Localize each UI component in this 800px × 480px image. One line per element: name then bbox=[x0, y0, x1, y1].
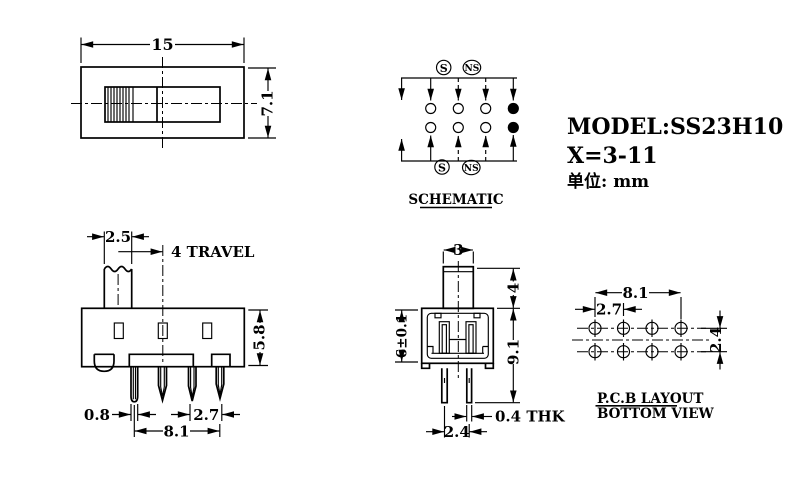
side-body-outline bbox=[422, 308, 494, 363]
dim-side-body-height: 6±0.1 bbox=[395, 310, 419, 362]
side-pins bbox=[442, 368, 472, 402]
dim-knob-width: 2.5 bbox=[87, 228, 149, 264]
dim-label-2-4-pcb: 2.4 bbox=[707, 327, 725, 353]
dim-label-2-7-pcb: 2.7 bbox=[596, 301, 622, 319]
schematic-view: S NS S NS SCHEMATIC bbox=[401, 60, 519, 208]
dim-pin-width: 0.8 bbox=[84, 404, 156, 424]
dim-side-knob-height: 4 bbox=[477, 268, 523, 308]
dim-label-15: 15 bbox=[151, 35, 173, 54]
schematic-title: SCHEMATIC bbox=[408, 192, 504, 208]
base-bump-left bbox=[94, 354, 114, 371]
dim-label-6: 6±0.1 bbox=[395, 314, 411, 358]
dim-front-height: 5.8 bbox=[248, 310, 268, 366]
cavity-notch-left bbox=[435, 313, 441, 318]
label-s-top: S bbox=[440, 62, 448, 75]
model-text: MODEL:SS23H10 bbox=[567, 114, 783, 140]
dim-label-3: 3 bbox=[453, 241, 463, 259]
dim-label-travel: 4 TRAVEL bbox=[171, 243, 255, 261]
x-range-text: X=3-11 bbox=[567, 143, 658, 169]
dim-label-8-1-pcb: 8.1 bbox=[622, 284, 648, 302]
label-s-bottom: S bbox=[438, 161, 446, 174]
dim-label-0-4-thk: 0.4 THK bbox=[495, 408, 566, 426]
dim-label-5-8: 5.8 bbox=[251, 324, 269, 350]
top-view: 15 7.1 bbox=[71, 35, 277, 149]
body-window-1 bbox=[114, 323, 123, 339]
body-window-3 bbox=[203, 323, 212, 339]
label-ns-top: NS bbox=[465, 64, 480, 74]
dim-label-2-7-front: 2.7 bbox=[193, 406, 219, 424]
dim-front-pin-pitch: 2.7 bbox=[171, 404, 240, 424]
unit-text: 单位: mm bbox=[567, 171, 649, 192]
dim-label-7-1: 7.1 bbox=[259, 90, 277, 116]
base-step-right bbox=[212, 354, 230, 366]
front-view: 2.5 4 TRAVEL 5.8 0.8 2.7 bbox=[82, 228, 269, 441]
base-step-center bbox=[129, 354, 193, 366]
dim-side-knob-width: 3 bbox=[443, 241, 473, 264]
front-pins bbox=[131, 367, 224, 402]
dim-pcb-pitch: 2.7 bbox=[575, 301, 642, 319]
cavity-notch-right bbox=[474, 313, 480, 318]
pcb-subtitle: BOTTOM VIEW bbox=[597, 406, 715, 422]
dim-travel: 4 TRAVEL bbox=[118, 243, 255, 261]
info-block: MODEL:SS23H10 X=3-11 单位: mm bbox=[567, 114, 783, 192]
dim-label-9-1: 9.1 bbox=[505, 339, 523, 365]
pcb-layout: 8.1 2.7 2.4 P.C.B LAYOUT BOTTOM VIEW bbox=[572, 284, 727, 422]
dim-label-2-5: 2.5 bbox=[105, 228, 131, 246]
drawing-canvas: 15 7.1 bbox=[0, 0, 800, 480]
dim-label-4: 4 bbox=[505, 283, 523, 293]
contact-circles bbox=[426, 103, 519, 133]
dim-label-0-8: 0.8 bbox=[84, 406, 110, 424]
pcb-title: P.C.B LAYOUT bbox=[597, 391, 703, 407]
dim-side-pin-pitch: 2.4 bbox=[426, 406, 487, 441]
dim-label-2-4-side: 2.4 bbox=[444, 423, 470, 441]
label-ns-bottom: NS bbox=[464, 164, 479, 174]
dim-pcb-row-pitch: 2.4 bbox=[701, 311, 727, 370]
dim-label-8-1-front: 8.1 bbox=[163, 423, 189, 441]
side-view: 3 4 9.1 6±0.1 bbox=[395, 241, 566, 441]
front-body-outline bbox=[82, 308, 245, 366]
knurl-hatch bbox=[108, 87, 129, 122]
technical-drawing-page: 15 7.1 bbox=[0, 0, 800, 480]
knob-break-line bbox=[104, 267, 131, 272]
dim-side-total-height: 9.1 bbox=[475, 309, 523, 403]
